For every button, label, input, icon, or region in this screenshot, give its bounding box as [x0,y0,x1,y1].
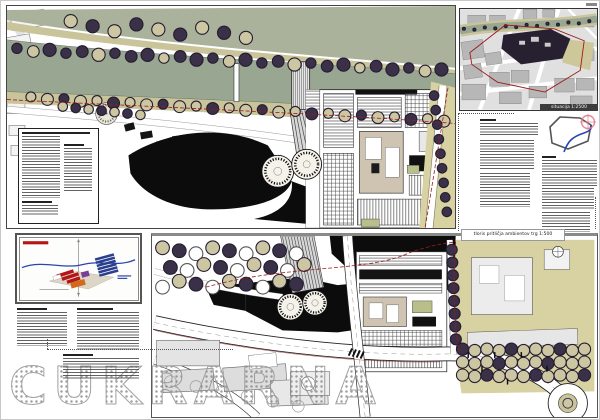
crosshair-icon [580,114,596,130]
dotted-guide [47,349,233,350]
drawing-sheet: situacija 1:2500 [0,0,600,420]
materials-list-2 [77,308,139,350]
panel-title [22,241,47,244]
program-list-a [480,119,538,207]
dotted-guide [595,197,596,229]
dotted-guide [458,113,459,231]
dotted-guide [47,339,48,349]
materials-list-3 [63,354,139,380]
program-diagram [20,238,138,300]
inset-caption: situacija 1:2500 [540,104,598,111]
top-map-legend [18,128,99,224]
sheet-number-tag [586,3,597,6]
annotation-line [117,275,131,276]
legend-title [22,132,90,134]
top-site-plan-frame [6,5,456,229]
program-diagram-panel [15,233,142,304]
inset-location-map [460,9,597,110]
bottom-plan-frame [151,233,598,418]
bottom-map-caption: tloris pritličja ambientov trg 1:500 [461,229,565,241]
roundabout [548,384,587,417]
bottom-ground-plan [152,236,597,417]
materials-list-1 [17,308,67,346]
dotted-guide [458,113,514,114]
program-list-b [542,156,597,232]
footbridge [234,64,239,102]
key-diagram [544,113,598,153]
inset-location-map-frame [459,8,598,111]
